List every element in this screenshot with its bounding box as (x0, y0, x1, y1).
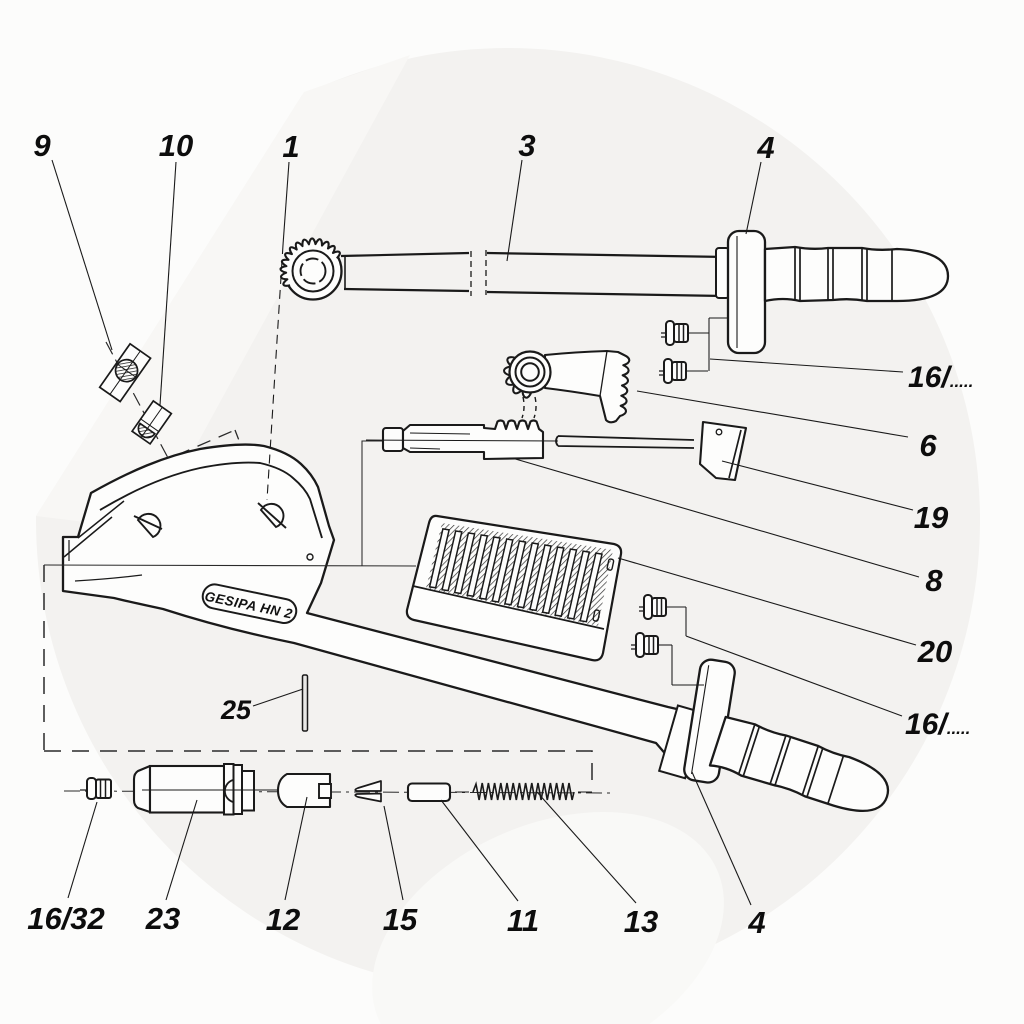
svg-text:4: 4 (747, 905, 765, 940)
svg-text:1: 1 (282, 129, 299, 164)
svg-text:16/32: 16/32 (27, 901, 105, 936)
svg-text:19: 19 (914, 500, 949, 535)
svg-text:12: 12 (266, 902, 300, 937)
svg-text:10: 10 (159, 128, 193, 163)
svg-text:6: 6 (919, 428, 937, 463)
svg-text:15: 15 (383, 902, 418, 937)
svg-text:11: 11 (507, 903, 539, 938)
svg-text:13: 13 (624, 904, 658, 939)
svg-text:20: 20 (917, 634, 952, 669)
svg-text:9: 9 (33, 128, 51, 163)
svg-text:25: 25 (220, 695, 252, 725)
svg-text:23: 23 (145, 901, 180, 936)
svg-text:3: 3 (518, 128, 535, 163)
svg-text:8: 8 (925, 563, 943, 598)
svg-text:4: 4 (756, 130, 774, 165)
